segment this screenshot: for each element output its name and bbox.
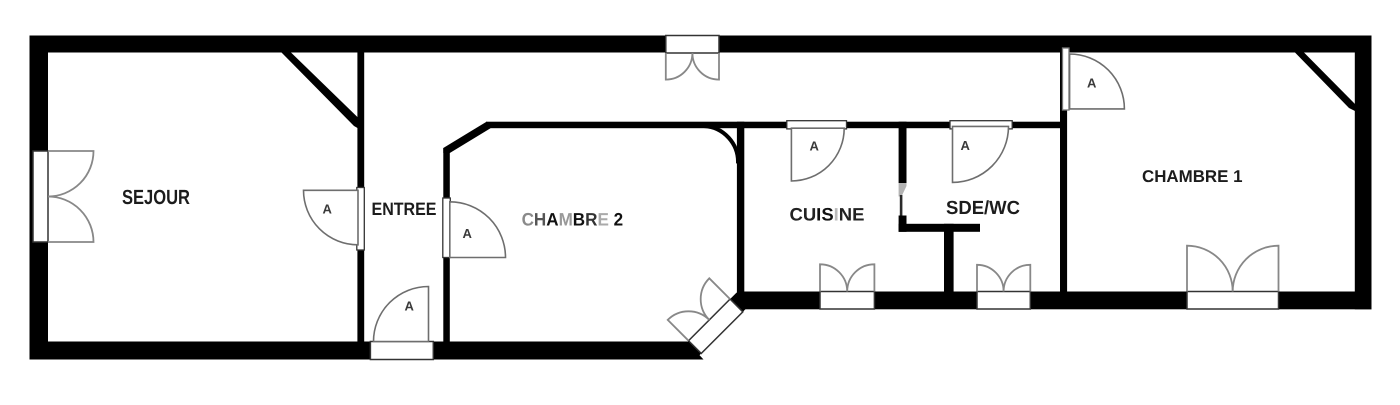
svg-text:A: A: [1087, 76, 1097, 91]
svg-text:CUISINE: CUISINE: [790, 205, 865, 225]
svg-text:SDE/WC: SDE/WC: [946, 198, 1020, 219]
svg-text:CHAMBRE 2: CHAMBRE 2: [522, 210, 624, 230]
svg-text:A: A: [810, 139, 820, 154]
svg-text:A: A: [405, 299, 415, 314]
svg-text:ENTREE: ENTREE: [372, 199, 437, 219]
svg-text:CHAMBRE 1: CHAMBRE 1: [1142, 167, 1243, 186]
svg-text:A: A: [961, 138, 971, 153]
svg-text:SEJOUR: SEJOUR: [122, 186, 190, 209]
svg-text:A: A: [323, 202, 333, 217]
svg-text:A: A: [463, 226, 473, 241]
